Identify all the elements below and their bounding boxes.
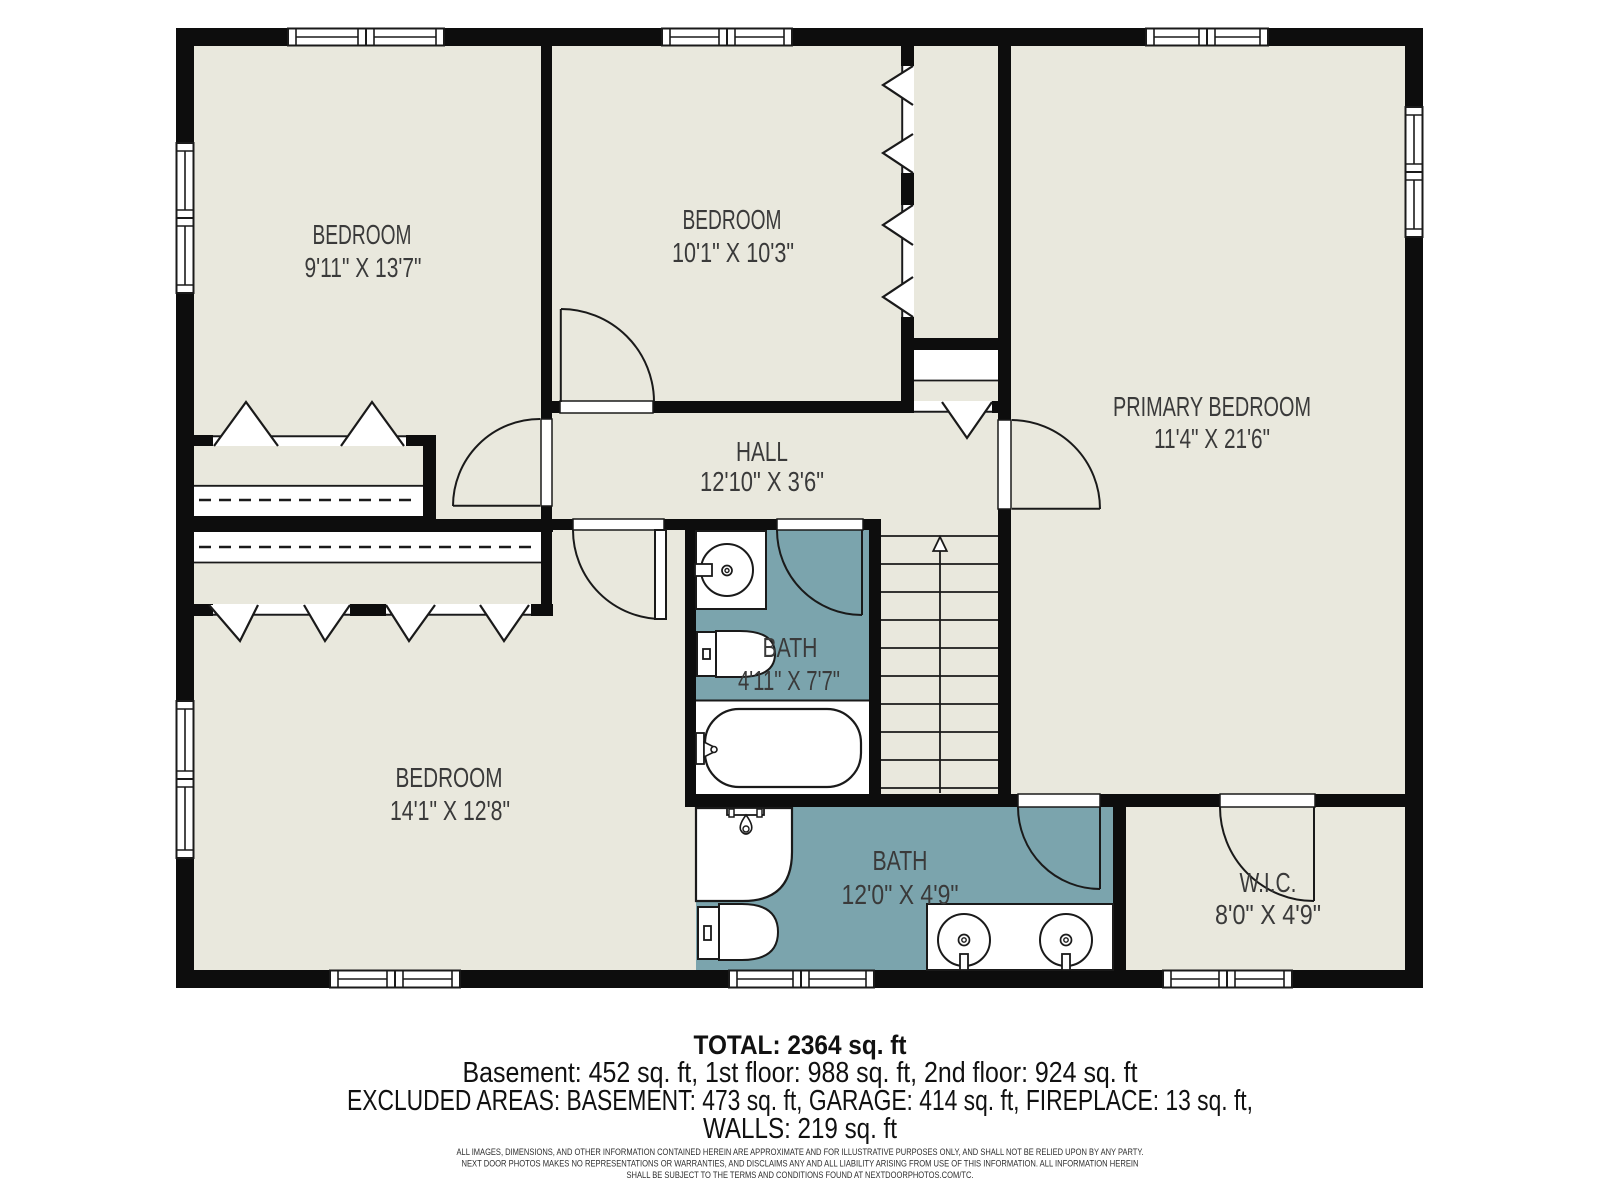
svg-text:8'0" X 4'9": 8'0" X 4'9": [1215, 899, 1321, 930]
svg-text:4'11" X 7'7": 4'11" X 7'7": [738, 665, 840, 696]
svg-text:BEDROOM: BEDROOM: [683, 204, 782, 235]
svg-text:WALLS: 219 sq. ft: WALLS: 219 sq. ft: [703, 1113, 897, 1145]
svg-text:BATH: BATH: [873, 845, 928, 876]
svg-text:W.I.C.: W.I.C.: [1240, 867, 1297, 898]
svg-text:14'1" X 12'8": 14'1" X 12'8": [390, 795, 510, 826]
svg-text:ALL IMAGES, DIMENSIONS, AND OT: ALL IMAGES, DIMENSIONS, AND OTHER INFORM…: [457, 1147, 1144, 1158]
svg-text:HALL: HALL: [736, 436, 788, 467]
svg-text:SHALL BE SUBJECT TO THE TERMS: SHALL BE SUBJECT TO THE TERMS AND CONDIT…: [627, 1170, 974, 1181]
svg-text:PRIMARY BEDROOM: PRIMARY BEDROOM: [1113, 391, 1311, 422]
svg-text:9'11" X 13'7": 9'11" X 13'7": [305, 252, 422, 283]
svg-text:TOTAL: 2364 sq. ft: TOTAL: 2364 sq. ft: [694, 1030, 907, 1060]
svg-text:11'4" X 21'6": 11'4" X 21'6": [1154, 423, 1270, 454]
svg-text:10'1" X 10'3": 10'1" X 10'3": [672, 237, 794, 268]
svg-text:BATH: BATH: [763, 632, 818, 663]
svg-text:NEXT DOOR PHOTOS MAKES NO REPR: NEXT DOOR PHOTOS MAKES NO REPRESENTATION…: [462, 1159, 1139, 1170]
svg-text:12'10" X 3'6": 12'10" X 3'6": [700, 466, 824, 497]
svg-text:BEDROOM: BEDROOM: [396, 762, 503, 793]
svg-text:BEDROOM: BEDROOM: [313, 219, 412, 250]
svg-text:12'0" X 4'9": 12'0" X 4'9": [842, 879, 959, 910]
